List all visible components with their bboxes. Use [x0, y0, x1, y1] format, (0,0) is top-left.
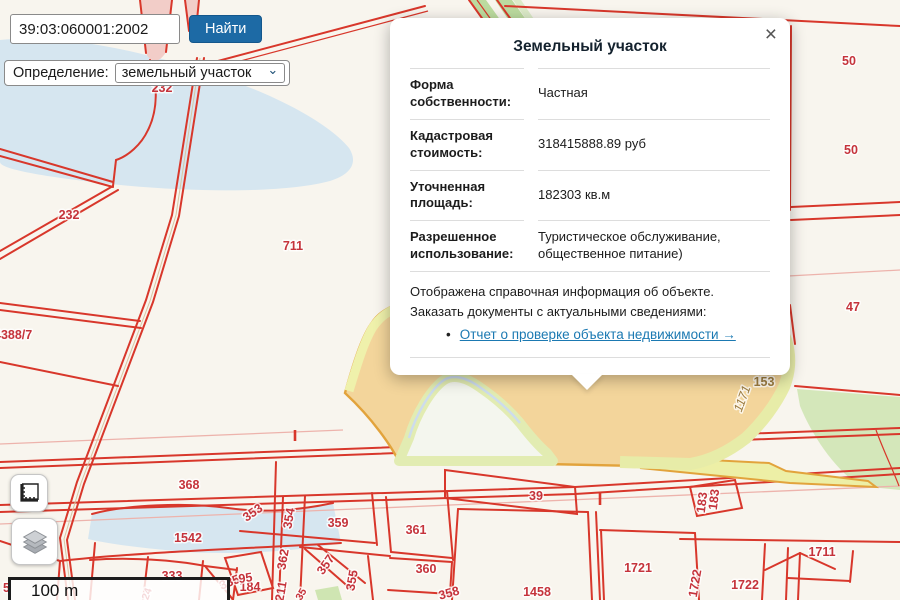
attribute-label: Разрешенное использование: [410, 220, 524, 271]
layers-button[interactable] [11, 518, 58, 565]
search-panel: Найти [10, 14, 262, 44]
map-parcel-label: 47 [846, 300, 860, 314]
map-parcel-label: 359 [328, 516, 349, 530]
attribute-value: 182303 кв.м [538, 170, 770, 221]
measure-button[interactable] [10, 474, 48, 512]
popup-footer-divider [410, 357, 770, 365]
map-parcel-label: 1458 [523, 585, 551, 599]
parcel-attributes: Форма собственности: Частная Кадастровая… [410, 68, 770, 272]
definition-label: Определение: [13, 65, 109, 81]
map-parcel-label: 50 [844, 143, 858, 157]
chevron-down-icon: ⌄ [267, 65, 278, 75]
map-parcel-label: 1542 [174, 531, 202, 545]
definition-selected-value: земельный участок [122, 65, 252, 81]
map-parcel-label: 183 [706, 488, 722, 510]
attribute-row: Кадастровая стоимость: 318415888.89 руб [410, 119, 770, 170]
map-parcel-label: 1711 [808, 545, 835, 559]
popup-tail [571, 374, 603, 390]
attribute-row: Форма собственности: Частная [410, 68, 770, 119]
definition-control: Определение: земельный участок ⌄ [4, 60, 290, 86]
search-button[interactable]: Найти [189, 15, 262, 43]
map-parcel-label: 39 [529, 489, 543, 503]
scale-label: 100 m [31, 581, 78, 600]
attribute-label: Кадастровая стоимость: [410, 119, 524, 170]
map-parcel-label: 360 [416, 562, 437, 576]
close-icon[interactable]: × [765, 24, 777, 45]
attribute-value: Частная [538, 68, 770, 119]
attribute-value: 318415888.89 руб [538, 119, 770, 170]
attribute-value: Туристическое обслуживание, общественное… [538, 220, 770, 271]
ruler-icon [17, 481, 41, 505]
bullet: • [446, 327, 451, 342]
parcel-info-popup: × Земельный участок Форма собственности:… [390, 18, 790, 375]
popup-title: Земельный участок [410, 38, 770, 56]
attribute-row: Уточненная площадь: 182303 кв.м [410, 170, 770, 221]
map-parcel-label: 1722 [731, 578, 759, 592]
map-parcel-label: 50 [842, 54, 856, 68]
map-parcel-label: 232 [59, 208, 80, 222]
map-parcel-label: 211 [272, 580, 289, 600]
definition-select[interactable]: земельный участок ⌄ [115, 63, 286, 83]
map-parcel-label: 1721 [624, 561, 652, 575]
map-parcel-label: 361 [406, 523, 427, 537]
popup-note: Отображена справочная информация об объе… [410, 282, 770, 321]
map-parcel-label: 95 [238, 570, 254, 586]
search-input[interactable] [10, 14, 180, 44]
attribute-label: Форма собственности: [410, 68, 524, 119]
report-link-row: • Отчет о проверке объекта недвижимости … [446, 327, 770, 342]
map-parcel-label: 368 [179, 478, 200, 492]
map-parcel-label: 4388/7 [0, 328, 32, 342]
report-link[interactable]: Отчет о проверке объекта недвижимости → [460, 327, 736, 342]
attribute-label: Уточненная площадь: [410, 170, 524, 221]
map-parcel-label: 153 [754, 375, 775, 389]
attribute-row: Разрешенное использование: Туристическое… [410, 220, 770, 271]
map-viewport[interactable]: 2322327114388/75050471531171117115336839… [0, 0, 900, 600]
map-parcel-label: 711 [283, 239, 303, 253]
scale-bar: 100 m [8, 577, 230, 600]
layers-icon [20, 527, 50, 557]
